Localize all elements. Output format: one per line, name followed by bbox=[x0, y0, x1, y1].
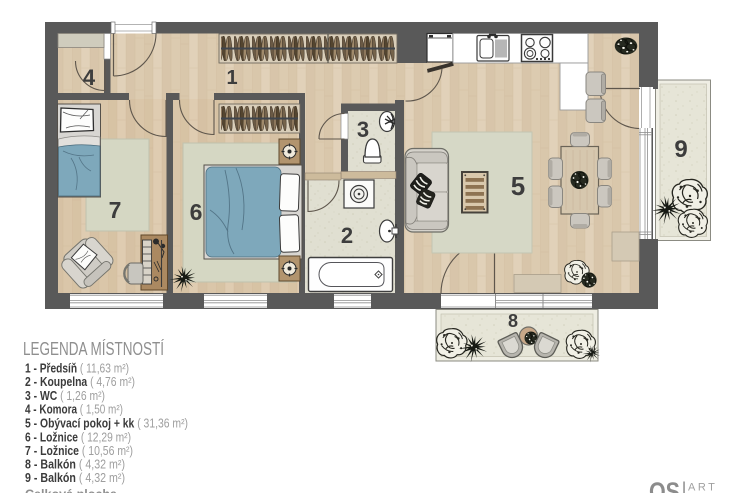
svg-text:5 - Obývací pokoj + kk ( 31,36: 5 - Obývací pokoj + kk ( 31,36 m²) bbox=[25, 416, 188, 430]
svg-text:ART: ART bbox=[688, 482, 717, 493]
svg-text:2 - Koupelna ( 4,76 m²): 2 - Koupelna ( 4,76 m²) bbox=[25, 375, 135, 389]
svg-text:6 - Ložnice ( 12,29 m²): 6 - Ložnice ( 12,29 m²) bbox=[25, 431, 131, 445]
svg-text:8 - Balkón ( 4,32 m²): 8 - Balkón ( 4,32 m²) bbox=[25, 457, 125, 471]
svg-text:3: 3 bbox=[357, 117, 369, 142]
svg-text:8: 8 bbox=[508, 311, 518, 331]
svg-text:6: 6 bbox=[190, 199, 203, 225]
svg-text:4: 4 bbox=[83, 65, 96, 90]
svg-text:3 - WC ( 1,26 m²): 3 - WC ( 1,26 m²) bbox=[25, 389, 105, 403]
svg-text:QS: QS bbox=[649, 477, 680, 493]
svg-text:2: 2 bbox=[341, 223, 353, 248]
svg-text:9: 9 bbox=[674, 136, 687, 163]
svg-text:1 - Předsíň ( 11,63 m²): 1 - Předsíň ( 11,63 m²) bbox=[25, 362, 129, 376]
svg-text:7 - Ložnice ( 10,56 m²): 7 - Ložnice ( 10,56 m²) bbox=[25, 444, 133, 458]
svg-text:5: 5 bbox=[511, 171, 525, 201]
svg-text:9 - Balkón ( 4,32 m²): 9 - Balkón ( 4,32 m²) bbox=[25, 471, 125, 485]
svg-text:4 - Komora ( 1,50 m²): 4 - Komora ( 1,50 m²) bbox=[25, 402, 123, 416]
svg-text:Celková plocha: Celková plocha bbox=[25, 488, 118, 493]
svg-text:1: 1 bbox=[226, 67, 237, 89]
svg-text:LEGENDA MÍSTNOSTÍ: LEGENDA MÍSTNOSTÍ bbox=[23, 338, 165, 359]
svg-text:7: 7 bbox=[109, 197, 122, 223]
